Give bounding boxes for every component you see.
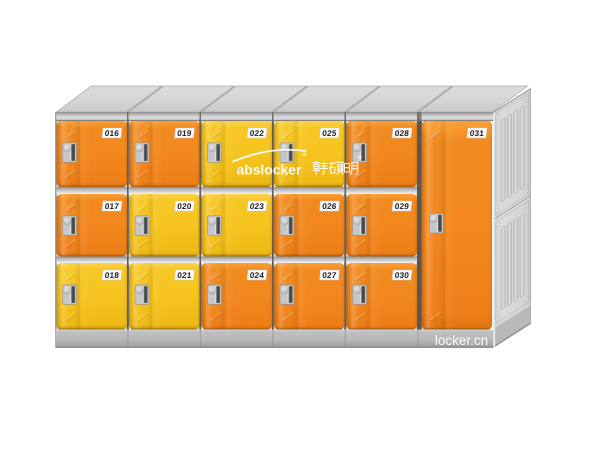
- svg-text:025: 025: [322, 129, 337, 138]
- svg-text:019: 019: [177, 129, 192, 138]
- svg-text:031: 031: [469, 129, 484, 138]
- svg-text:016: 016: [104, 129, 119, 138]
- svg-text:020: 020: [177, 202, 192, 211]
- svg-text:023: 023: [249, 202, 264, 211]
- svg-text:024: 024: [249, 271, 264, 280]
- svg-text:021: 021: [177, 271, 192, 280]
- svg-text:030: 030: [394, 271, 409, 280]
- svg-text:029: 029: [394, 202, 409, 211]
- svg-text:027: 027: [322, 271, 337, 280]
- svg-text:017: 017: [104, 202, 119, 211]
- svg-text:022: 022: [249, 129, 264, 138]
- svg-text:abslocker: abslocker: [237, 162, 302, 178]
- svg-text:026: 026: [322, 202, 337, 211]
- svg-text:locker.cn: locker.cn: [435, 333, 488, 348]
- svg-text:028: 028: [394, 129, 409, 138]
- svg-text:018: 018: [104, 271, 119, 280]
